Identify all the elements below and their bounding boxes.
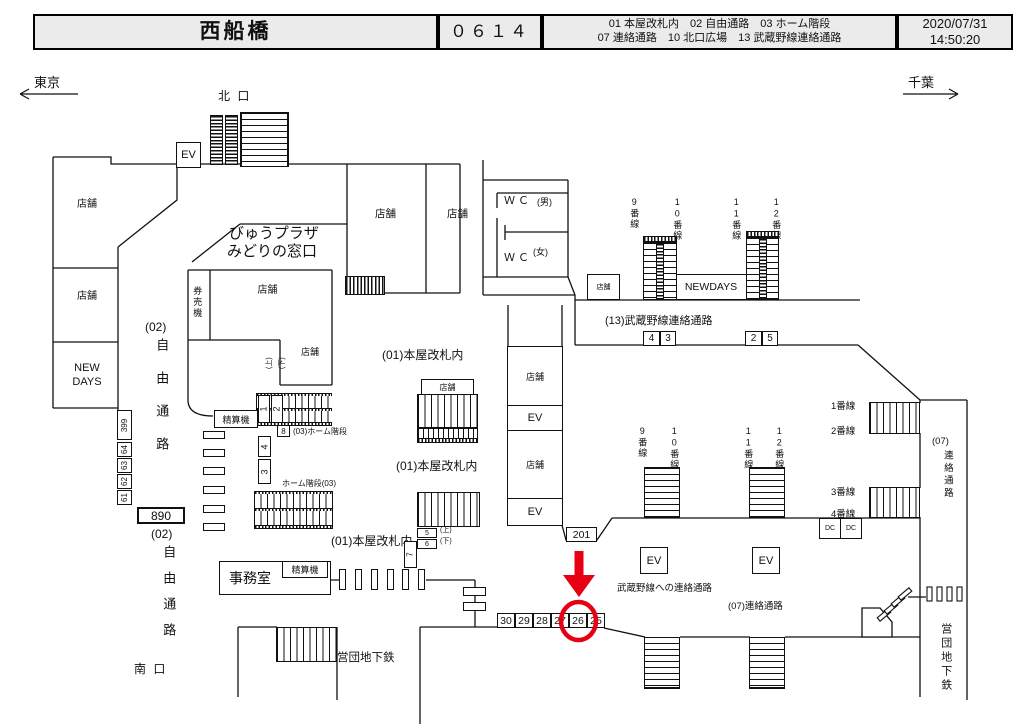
ad-position-28: 28 — [533, 613, 551, 628]
ad-position-201: 201 — [566, 527, 597, 542]
ad-position-1: 1 — [258, 395, 270, 423]
ticket-gate-icon — [418, 569, 425, 590]
central-stair-icon — [417, 394, 478, 428]
ticket-gate-icon — [371, 569, 378, 590]
north-escalator-icon — [225, 115, 238, 165]
station-map-page: 西船橋 ０６１４ 01 本屋改札内 02 自由通路 03 ホーム階段 07 連絡… — [0, 0, 1024, 724]
header-timestamp-box: 2020/07/31 14:50:20 — [897, 14, 1013, 50]
ad-position-64: 64 — [117, 442, 132, 457]
subway-label: 営団地下鉄 — [938, 623, 952, 709]
south-exit-label: 南 口 — [134, 662, 167, 677]
down-stair-icon — [644, 637, 680, 689]
shop-room: 店舗 — [507, 346, 563, 406]
down-stair-icon — [749, 637, 785, 689]
wc-women-suffix: (女) — [533, 247, 548, 258]
platform-3-label: 3番線 — [831, 487, 855, 499]
wc-women-label: ＷＣ — [504, 252, 532, 266]
elevator-box: EV — [507, 405, 563, 431]
up-label: (上) — [440, 527, 452, 536]
labels-layer: 西船橋 ０６１４ 01 本屋改札内 02 自由通路 03 ホーム階段 07 連絡… — [0, 0, 1024, 724]
ad-position-3: 3 — [660, 331, 676, 346]
side-stair-icon — [869, 487, 920, 518]
ticket-gate-icon — [203, 431, 225, 439]
legend-line-1: 01 本屋改札内 02 自由通路 03 ホーム階段 — [609, 18, 831, 32]
time-label: 14:50:20 — [930, 32, 981, 48]
north-escalator-icon — [210, 115, 223, 165]
ad-position-7: 7 — [404, 541, 417, 568]
central-stair-icon — [417, 492, 480, 527]
platform-stair-b-label: ホーム階段(03) — [282, 479, 336, 489]
office-label: 事務室 — [229, 570, 271, 588]
platform-1-label: 1番線 — [831, 401, 855, 413]
corridor07-label: (07)連絡通路 — [728, 601, 783, 613]
header-code-box: ０６１４ — [438, 14, 542, 50]
ad-position-890: 890 — [137, 507, 185, 524]
inside-gate-label: (01)本屋改札内 — [331, 534, 412, 549]
ad-position-3b: 3 — [258, 459, 271, 484]
ad-position-63: 63 — [117, 458, 132, 473]
elevator-box: EV — [507, 498, 563, 526]
platform-stair03-icon — [254, 494, 333, 509]
legend-line-2: 07 連絡通路 10 北口広場 13 武蔵野線連絡通路 — [598, 32, 842, 46]
elevator-box: EV — [752, 547, 780, 574]
platform-stair-a-label: (03)ホーム階段 — [293, 427, 347, 437]
platform-stair03-icon — [254, 511, 333, 526]
escalator-strip-icon — [759, 238, 767, 299]
subway-stair-icon — [276, 627, 337, 662]
free-passage-label: 自由通路 — [160, 545, 176, 663]
fare-adjustment-box: 精算機 — [214, 410, 258, 428]
ad-position-2: 2 — [745, 331, 762, 346]
direction-tokyo: 東京 — [34, 75, 60, 91]
platform-stair-icon — [644, 467, 680, 518]
ticket-gate-icon — [387, 569, 394, 590]
ad-position-30: 30 — [497, 613, 515, 628]
side-stair-icon — [869, 402, 920, 434]
ad-position-62: 62 — [117, 474, 132, 489]
ticket-gate-icon — [203, 486, 225, 494]
dc-box: DC — [840, 518, 862, 539]
newdays-store: NEWDAYS — [675, 274, 747, 300]
wc-men-label: ＷＣ — [504, 195, 532, 209]
fare-adjustment-box: 精算機 — [282, 561, 328, 578]
free-passage-code: (02) — [145, 320, 185, 335]
platform-12-label: 12番線 — [773, 426, 784, 470]
ad-position-27: 27 — [551, 613, 569, 628]
date-label: 2020/07/31 — [922, 16, 987, 32]
shop-label: 店舗 — [430, 208, 485, 221]
elevator-box: EV — [640, 547, 668, 574]
ad-position-5b: 5 — [417, 528, 437, 538]
platform-11-label: 11番線 — [730, 197, 741, 245]
ticket-machines-label: 券売機 — [191, 286, 202, 332]
down-label: (下) — [279, 357, 288, 369]
platform-2-label: 2番線 — [831, 426, 855, 438]
up-label: (上) — [266, 357, 275, 369]
elevator-north: EV — [176, 142, 201, 168]
ad-position-29: 29 — [515, 613, 533, 628]
ad-position-61: 61 — [117, 490, 132, 505]
station-name: 西船橋 — [200, 19, 272, 45]
shop-label: 店舗 — [62, 199, 112, 212]
corridor07-code: (07) — [932, 436, 949, 448]
ticket-gate-icon — [203, 449, 225, 457]
wc-men-suffix: (男) — [537, 197, 552, 208]
shop-label: 店舗 — [62, 291, 112, 304]
musashino-link-label: 武蔵野線への連絡通路 — [617, 583, 712, 595]
ticket-gate-icon — [463, 587, 486, 596]
escalator-strip-icon — [656, 243, 664, 299]
ticket-gate-icon — [355, 569, 362, 590]
midori-window-label: みどりの窓口 — [227, 243, 317, 262]
ticket-gate-icon — [463, 602, 486, 611]
inside-gate-label: (01)本屋改札内 — [396, 459, 477, 474]
down-label: (下) — [440, 538, 452, 547]
ad-position-6: 6 — [417, 539, 437, 549]
view-plaza-label: びゅうプラザ — [229, 225, 319, 244]
ad-position-2b: 2 — [271, 395, 283, 423]
header-legend-box: 01 本屋改札内 02 自由通路 03 ホーム階段 07 連絡通路 10 北口広… — [542, 14, 897, 50]
musashino-corridor-label: (13)武蔵野線連絡通路 — [605, 315, 713, 329]
gate-stair-icon — [345, 276, 385, 295]
inside-gate-label: (01)本屋改札内 — [382, 348, 463, 363]
ad-position-5: 5 — [762, 331, 778, 346]
north-stair-icon — [240, 112, 289, 167]
free-passage-code: (02) — [151, 527, 191, 542]
ad-position-26-highlighted: 26 — [569, 613, 587, 628]
platform-11-label: 11番線 — [742, 426, 753, 470]
newdays-shop-label: NEW DAYS — [58, 362, 116, 390]
ticket-gate-icon — [339, 569, 346, 590]
ad-position-4: 4 — [643, 331, 660, 346]
dc-box: DC — [819, 518, 841, 539]
ticket-gate-icon — [203, 505, 225, 513]
subway-label: 営団地下鉄 — [337, 651, 395, 665]
ad-position-4b: 4 — [258, 436, 271, 457]
ticket-gate-icon — [203, 467, 225, 475]
direction-chiba: 千葉 — [908, 75, 934, 91]
shop-label: 店舗 — [289, 347, 331, 358]
ticket-gate-icon — [203, 523, 225, 531]
platform-stair-icon — [749, 467, 785, 518]
shop-label: 店舗 — [245, 285, 290, 298]
platform-9-label: 9番線 — [636, 426, 647, 470]
corridor07-name: 連絡通路 — [941, 450, 953, 506]
stair-cap-icon — [417, 438, 478, 443]
ticket-gate-icon — [402, 569, 409, 590]
free-passage-label: 自由通路 — [153, 338, 169, 478]
platform-10-label: 10番線 — [668, 426, 679, 470]
shop-room: 店舗 — [587, 274, 620, 300]
stair-cap-icon — [254, 525, 333, 529]
ad-position-399: 399 — [117, 410, 132, 440]
shop-room: 店舗 — [507, 430, 563, 499]
location-code: ０６１４ — [450, 21, 530, 42]
shop-room: 店舗 — [421, 379, 474, 395]
shop-label: 店舗 — [358, 208, 413, 221]
north-exit-label: 北 口 — [218, 89, 251, 104]
platform-9-label: 9番線 — [628, 197, 639, 245]
ad-position-8: 8 — [277, 425, 290, 437]
header-station-box: 西船橋 — [33, 14, 438, 50]
ad-position-25: 25 — [587, 613, 605, 628]
